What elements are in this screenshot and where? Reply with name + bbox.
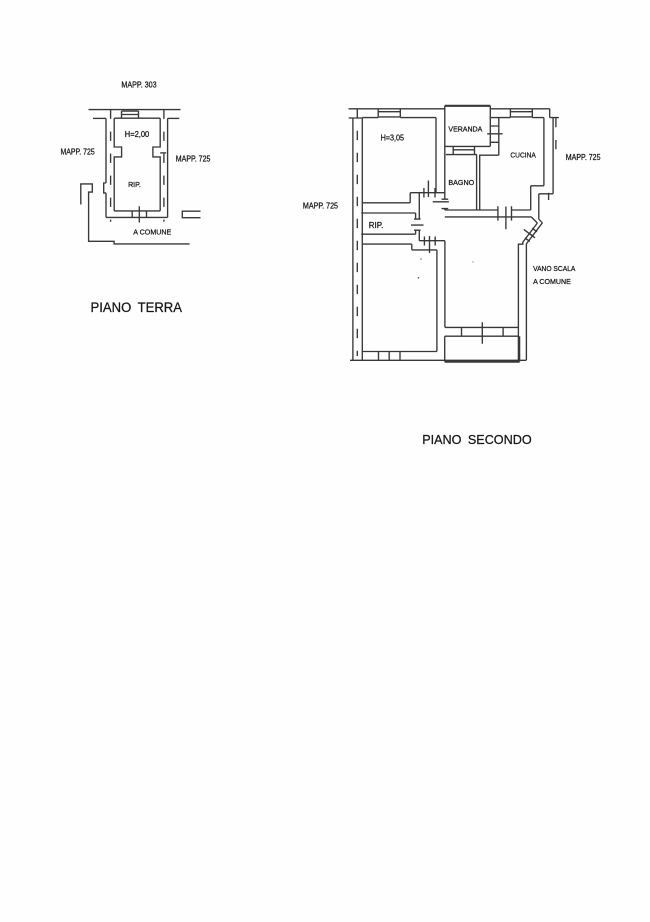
svg-text:MAPP. 725: MAPP. 725 — [61, 148, 96, 157]
svg-text:VANO SCALA: VANO SCALA — [533, 264, 575, 273]
svg-text:RIP.: RIP. — [128, 180, 141, 189]
svg-text:CUCINA: CUCINA — [510, 150, 535, 159]
svg-text:BAGNO: BAGNO — [448, 178, 474, 187]
svg-text:RIP.: RIP. — [369, 221, 384, 230]
svg-text:MAPP. 725: MAPP. 725 — [303, 202, 339, 211]
svg-text:PIANO SECONDO: PIANO SECONDO — [422, 432, 532, 447]
svg-text:PIANO TERRA: PIANO TERRA — [91, 300, 183, 315]
svg-text:H=3,05: H=3,05 — [381, 133, 405, 142]
svg-text:H=2,00: H=2,00 — [125, 130, 150, 139]
svg-text:MAPP. 725: MAPP. 725 — [566, 153, 601, 162]
svg-text:A COMUNE: A COMUNE — [533, 277, 571, 286]
svg-text:A COMUNE: A COMUNE — [133, 227, 171, 236]
svg-text:MAPP. 303: MAPP. 303 — [121, 80, 156, 89]
svg-text:MAPP. 725: MAPP. 725 — [176, 155, 211, 164]
svg-text:VERANDA: VERANDA — [448, 125, 482, 134]
